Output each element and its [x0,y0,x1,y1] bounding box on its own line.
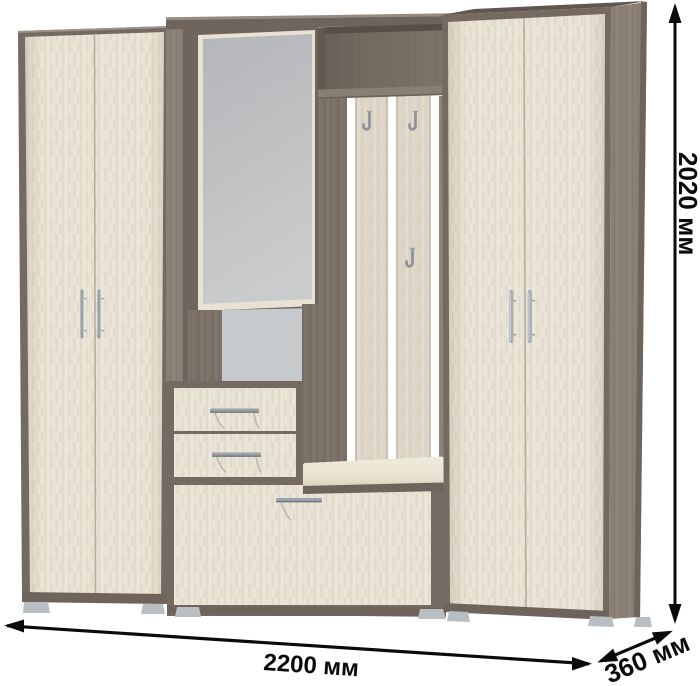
svg-text:2020 мм: 2020 мм [673,152,700,256]
